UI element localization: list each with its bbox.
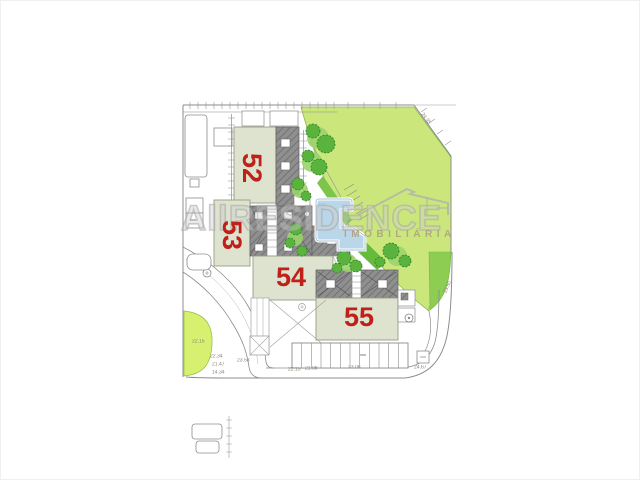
- dimension-label: 22.34: [210, 354, 223, 359]
- dimension-label: 22.15: [192, 339, 205, 344]
- building-55-number: 55: [336, 296, 382, 338]
- dimension-label: 14.34: [212, 370, 225, 375]
- left-lots: [185, 115, 232, 458]
- dimension-label: 22.15: [288, 367, 301, 372]
- site-plan-drawing: [0, 0, 640, 480]
- building-53-number: 53: [211, 212, 253, 258]
- watermark-subtitle: IMOBILIÁRIA: [344, 229, 456, 240]
- site-plan-image: AllRESIDENCE IMOBILIÁRIA 52 53 54 55 24.…: [0, 0, 640, 480]
- dimension-label: 21.47: [212, 362, 225, 367]
- dimension-label: 23.08: [348, 365, 361, 370]
- dimension-label: 24.67: [414, 365, 427, 370]
- dimension-label: 23.53: [237, 358, 250, 363]
- building-54-number: 54: [268, 256, 314, 298]
- building-52-number: 52: [231, 145, 273, 191]
- dimension-label: 21.98: [305, 366, 318, 371]
